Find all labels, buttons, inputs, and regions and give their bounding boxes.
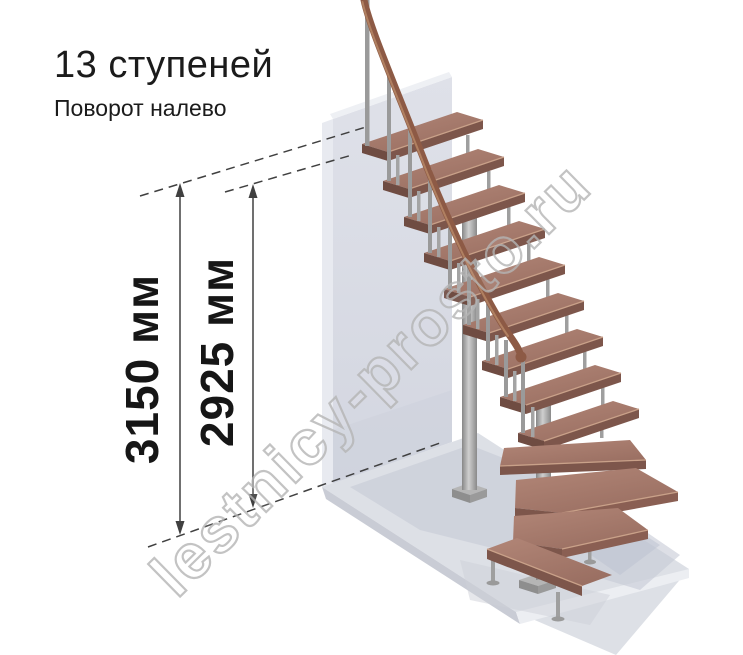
staircase-diagram: 13 ступеней Поворот налево [0, 0, 743, 655]
dimension-label-3150: 3150 мм [116, 274, 168, 464]
dimension-label-2925: 2925 мм [191, 257, 243, 447]
staircase-illustration: 3150 мм 2925 мм lestnicy-prosto.ru [0, 0, 743, 655]
handrail-end-cap [516, 352, 527, 363]
